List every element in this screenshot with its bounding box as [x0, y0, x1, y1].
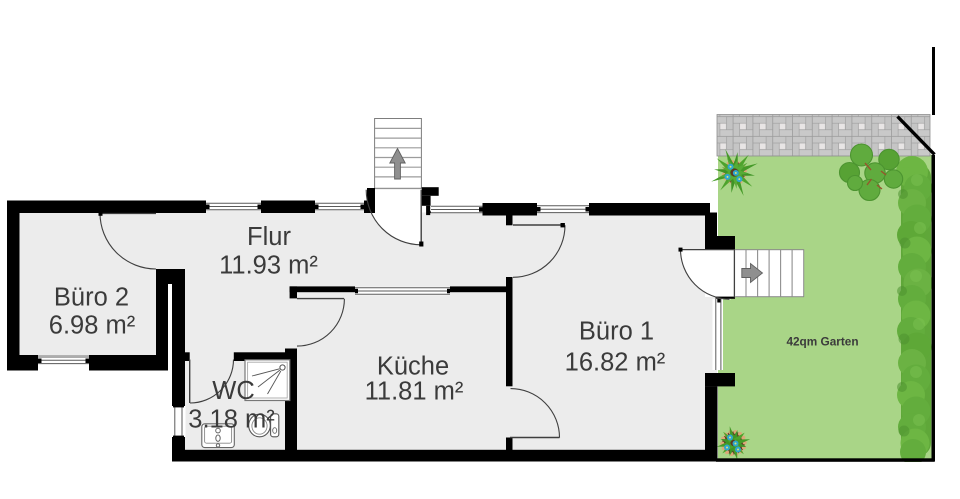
svg-text:42qm Garten: 42qm Garten — [786, 334, 858, 348]
svg-text:3.18 m²: 3.18 m² — [188, 406, 274, 434]
svg-text:11.81 m²: 11.81 m² — [365, 378, 464, 406]
svg-text:11.93 m²: 11.93 m² — [219, 252, 318, 280]
svg-text:WC: WC — [212, 377, 254, 405]
svg-text:Büro 2: Büro 2 — [54, 284, 129, 312]
svg-text:Küche: Küche — [377, 353, 449, 381]
svg-text:Flur: Flur — [247, 223, 291, 251]
svg-text:16.82 m²: 16.82 m² — [565, 349, 666, 377]
svg-text:6.98 m²: 6.98 m² — [49, 312, 135, 340]
svg-text:Büro 1: Büro 1 — [579, 318, 654, 346]
